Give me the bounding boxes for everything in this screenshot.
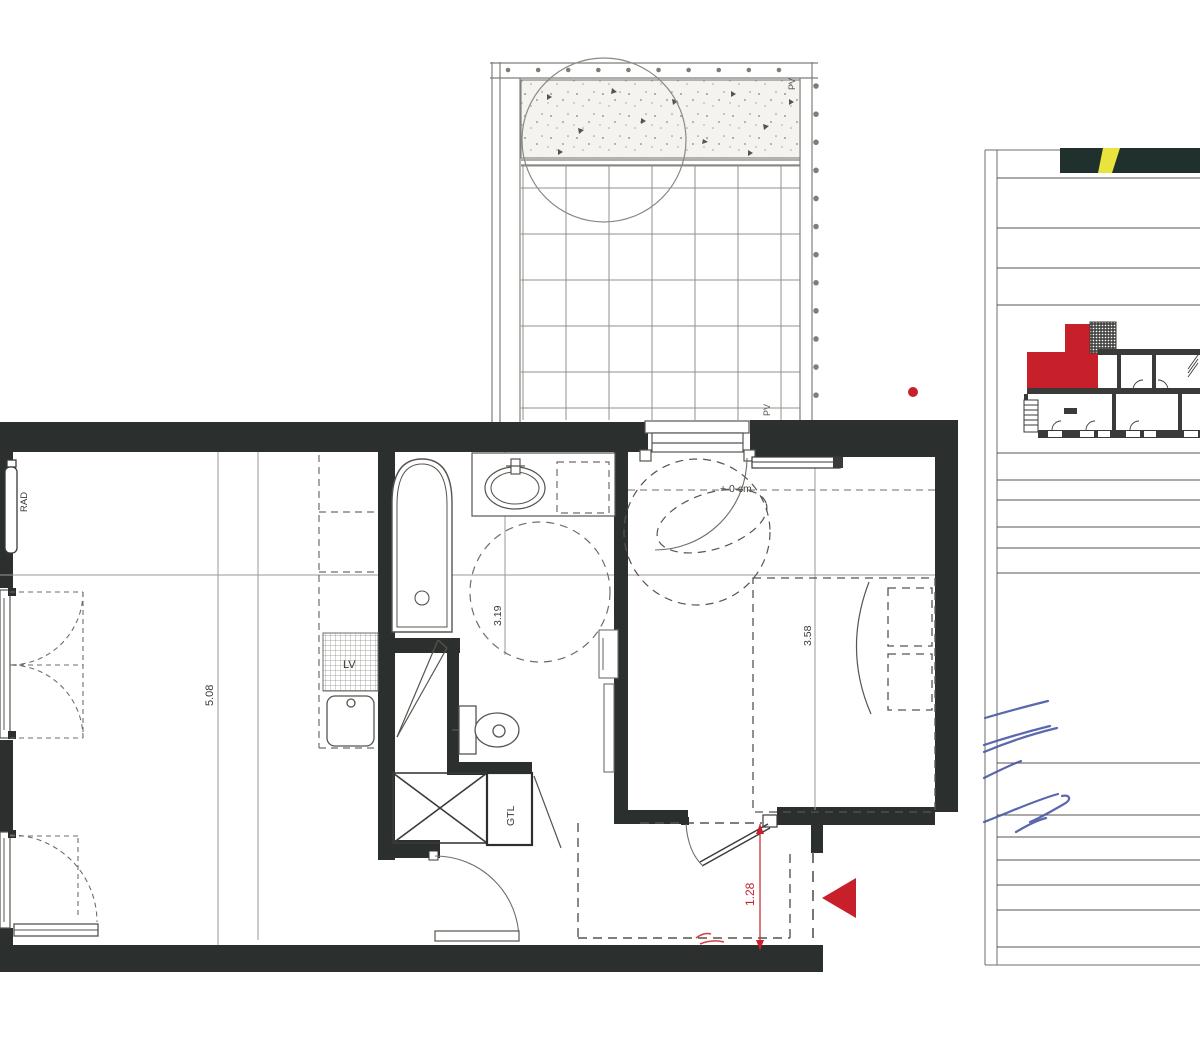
- storage-closet: [393, 773, 487, 843]
- bathroom: 3.19: [392, 453, 615, 737]
- site-panel: [984, 148, 1200, 965]
- panel-title-band: [1060, 148, 1200, 173]
- radiator-bedroom: [752, 457, 843, 468]
- bedroom: + 0 cm 3.58: [624, 421, 935, 866]
- french-window-single: [0, 830, 98, 936]
- hall: [429, 630, 790, 941]
- living-room: 5.08 RAD: [0, 452, 935, 945]
- scanned-floor-plan-sheet: PV PV 5.08: [0, 0, 1200, 1050]
- turning-circle-bath: [470, 522, 610, 662]
- site-stairs: [1024, 400, 1038, 432]
- bedroom-door: [681, 815, 777, 866]
- construction-lines: [0, 452, 935, 945]
- dim-living-room: 5.08: [204, 685, 216, 706]
- terrace-door-arc: [655, 458, 747, 550]
- entry: 1.28: [696, 824, 856, 950]
- toilet-drain: [493, 725, 505, 737]
- site-plan: [1024, 322, 1200, 438]
- entry-dimension: 1.28: [743, 824, 764, 950]
- wall-hall-bedroom: [614, 810, 688, 824]
- kitchen-sink: [327, 696, 374, 746]
- wall-wc-left: [447, 650, 459, 775]
- hall-door-leaf: [435, 931, 519, 941]
- wc: [452, 706, 519, 754]
- terrace-door: [640, 421, 755, 461]
- entry-arrow: [822, 878, 856, 918]
- wall-left-b: [0, 740, 13, 832]
- red-dot: [908, 387, 918, 397]
- kitchen: LV: [319, 455, 378, 748]
- pillow: [888, 654, 932, 710]
- bathtub: [392, 459, 452, 632]
- pillow: [888, 588, 932, 646]
- label-gtl: GTL: [505, 805, 517, 826]
- french-window-double: [0, 588, 83, 739]
- toilet-tank: [459, 706, 476, 754]
- bathroom-door: [397, 640, 447, 737]
- label-dishwasher: LV: [343, 659, 356, 671]
- hall-boundary: [578, 823, 790, 938]
- wall-top-right: [750, 420, 958, 457]
- site-unit-red: [1027, 324, 1098, 392]
- bed-cover-curve: [856, 582, 871, 714]
- terrace: PV PV: [490, 58, 818, 428]
- red-pen-marks: [696, 934, 724, 945]
- bed: [753, 578, 935, 812]
- dim-bedroom: 3.58: [802, 625, 814, 646]
- wall-right: [935, 420, 958, 812]
- panel-form-lines: [997, 178, 1200, 947]
- hall-door-arc: [435, 856, 519, 940]
- dim-entry: 1.28: [743, 882, 757, 906]
- wall-top-left: [0, 422, 648, 452]
- dim-bathroom: 3.19: [492, 605, 504, 626]
- gtl-shaft: GTL: [487, 773, 561, 848]
- floor-plan-drawing: PV PV 5.08: [0, 0, 1200, 1050]
- wall-entry-stub: [811, 825, 823, 853]
- label-radiator: RAD: [19, 492, 30, 512]
- label-pv-bottom: PV: [762, 404, 772, 416]
- site-hatched-block: [1090, 322, 1116, 353]
- panel-borders: [985, 150, 1200, 965]
- terrace-tile-grid: [521, 166, 800, 420]
- planted-bed: [521, 80, 800, 158]
- radiator-living: [5, 460, 17, 553]
- turning-circle-bedroom: [624, 459, 770, 605]
- wall-bottom: [0, 945, 823, 972]
- wall-entry-top: [777, 807, 935, 825]
- label-pv-top: PV: [787, 78, 797, 90]
- gtl-panel-door: [534, 776, 561, 848]
